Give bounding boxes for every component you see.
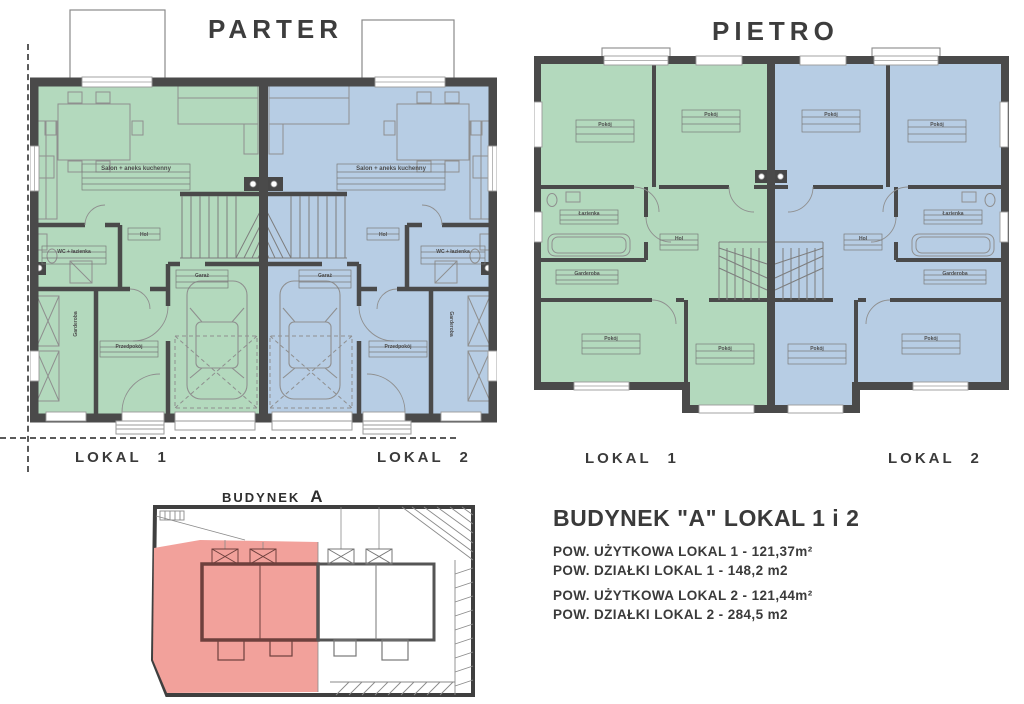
svg-text:Pokój: Pokój xyxy=(924,336,938,342)
info-title: BUDYNEK "A" LOKAL 1 i 2 xyxy=(553,505,993,532)
pietro-lokal2-label: LOKAL 2 xyxy=(888,450,982,467)
info-line-3: POW. UŻYTKOWA LOKAL 2 - 121,44m² xyxy=(553,588,993,603)
site-plan xyxy=(150,502,482,702)
svg-text:Łazienka: Łazienka xyxy=(942,211,963,217)
svg-text:Garderoba: Garderoba xyxy=(73,311,79,337)
section-line-vertical xyxy=(27,44,29,472)
svg-text:Pokój: Pokój xyxy=(930,122,944,128)
pietro-lokal1-label: LOKAL 1 xyxy=(585,450,679,467)
parter-lokal1-label: LOKAL 1 xyxy=(75,449,169,466)
svg-text:Garderoba: Garderoba xyxy=(942,271,968,277)
svg-text:Pokój: Pokój xyxy=(704,112,718,118)
svg-text:WC + łazienka: WC + łazienka xyxy=(436,249,470,255)
svg-text:Przedpokój: Przedpokój xyxy=(385,344,413,350)
svg-text:Salon + aneks kuchenny: Salon + aneks kuchenny xyxy=(356,166,427,172)
svg-text:Garderoba: Garderoba xyxy=(574,271,600,277)
svg-text:Pokój: Pokój xyxy=(810,346,824,352)
svg-text:Hol: Hol xyxy=(379,232,388,238)
pietro-plan: Pokój Pokój Łazienka Garderoba Hol Pokój… xyxy=(534,42,1009,422)
parter-lokal2-label: LOKAL 2 xyxy=(377,449,471,466)
svg-text:Hol: Hol xyxy=(675,236,684,242)
svg-text:WC + łazienka: WC + łazienka xyxy=(57,249,91,255)
svg-text:Pokój: Pokój xyxy=(598,122,612,128)
info-block: BUDYNEK "A" LOKAL 1 i 2 POW. UŻYTKOWA LO… xyxy=(553,505,993,622)
svg-text:Pokój: Pokój xyxy=(718,346,732,352)
svg-text:Łazienka: Łazienka xyxy=(578,211,599,217)
info-line-4: POW. DZIAŁKI LOKAL 2 - 284,5 m2 xyxy=(553,607,993,622)
info-line-1: POW. UŻYTKOWA LOKAL 1 - 121,37m² xyxy=(553,544,993,559)
entry-steps xyxy=(116,421,411,434)
svg-text:Hol: Hol xyxy=(859,236,868,242)
parter-plan: Salon + aneks kuchenny WC + łazienka Gar… xyxy=(30,6,497,438)
info-line-2: POW. DZIAŁKI LOKAL 1 - 148,2 m2 xyxy=(553,563,993,578)
svg-text:Pokój: Pokój xyxy=(604,336,618,342)
floor-plan-sheet: PARTER PIETRO xyxy=(0,0,1024,704)
svg-text:Garaż: Garaż xyxy=(318,273,332,279)
svg-text:Salon + aneks kuchenny: Salon + aneks kuchenny xyxy=(101,166,172,172)
svg-text:Hol: Hol xyxy=(140,232,149,238)
svg-text:Garaż: Garaż xyxy=(195,273,209,279)
svg-text:Przedpokój: Przedpokój xyxy=(116,344,144,350)
terrace-outline xyxy=(70,10,454,80)
svg-text:Pokój: Pokój xyxy=(824,112,838,118)
svg-text:Garderoba: Garderoba xyxy=(448,311,454,337)
